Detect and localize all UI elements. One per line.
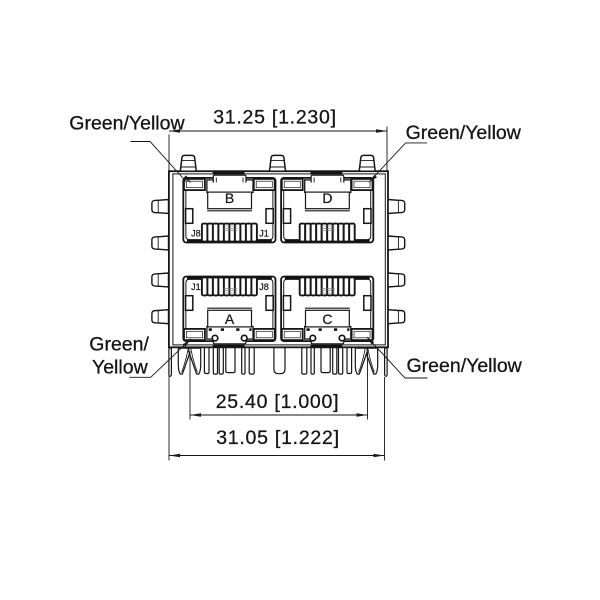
svg-text:C: C [322, 311, 332, 327]
svg-text:J8: J8 [259, 282, 269, 292]
svg-text:J1: J1 [191, 282, 201, 292]
svg-text:Green/Yellow: Green/Yellow [406, 122, 522, 144]
svg-text:Green/Yellow: Green/Yellow [407, 355, 523, 377]
svg-text:Yellow: Yellow [92, 356, 149, 378]
svg-text:31.25 [1.230]: 31.25 [1.230] [213, 106, 337, 128]
svg-text:J1: J1 [259, 228, 269, 238]
svg-text:Green/Yellow: Green/Yellow [69, 113, 185, 135]
svg-text:25.40 [1.000]: 25.40 [1.000] [216, 391, 340, 413]
svg-text:J8: J8 [191, 228, 201, 238]
svg-text:B: B [225, 190, 234, 206]
svg-text:Green/: Green/ [89, 334, 149, 356]
svg-text:A: A [225, 311, 235, 327]
svg-text:D: D [322, 190, 332, 206]
svg-text:31.05 [1.222]: 31.05 [1.222] [216, 427, 340, 449]
